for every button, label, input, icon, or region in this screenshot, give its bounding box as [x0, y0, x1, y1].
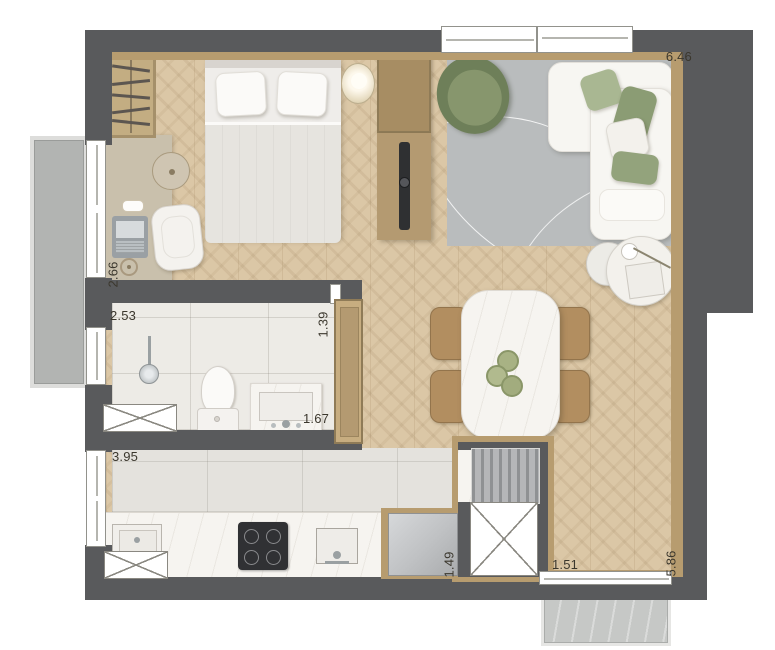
shaft-counter-return	[458, 450, 471, 502]
window-sash-line	[96, 456, 98, 496]
window-bedroom-left	[86, 140, 106, 278]
dimension-label: 1.67	[303, 411, 329, 426]
laptop	[112, 216, 148, 258]
kitchen-floor	[112, 448, 458, 512]
dimension-label: 5.86	[664, 543, 679, 577]
side-balcony	[30, 136, 88, 388]
kitchen-sink-main	[316, 528, 358, 564]
duvet	[205, 122, 341, 243]
desk-bowl	[120, 258, 138, 276]
table-lamp	[341, 63, 375, 104]
flush-button	[214, 416, 220, 422]
washing-machine	[104, 551, 168, 579]
window-lower-balcony	[539, 571, 672, 585]
shower-head-icon	[139, 364, 159, 384]
window-sash-line	[96, 213, 98, 273]
dimension-label: 2.53	[110, 308, 136, 323]
tv-mount	[399, 177, 410, 188]
shaft-duct	[470, 502, 538, 576]
double-bed	[205, 60, 341, 240]
lamp-pole	[169, 169, 175, 175]
tv-panel	[377, 133, 431, 240]
sofa-cushion-line	[599, 189, 665, 221]
cup	[621, 243, 638, 260]
window-sash-line	[544, 578, 669, 580]
vanity	[250, 383, 322, 434]
burner	[244, 550, 259, 565]
shaft-grille	[471, 448, 540, 504]
wall-bathroom-top	[112, 280, 362, 303]
sofa-pillow-green	[610, 150, 659, 185]
tv-cabinet	[377, 52, 431, 133]
wardrobe	[106, 54, 156, 138]
faucet-handle	[271, 423, 276, 428]
cooktop	[238, 522, 288, 570]
window-sash-line	[96, 332, 98, 380]
pillow	[215, 71, 267, 118]
faucet	[282, 420, 290, 428]
wall-trim-right	[671, 50, 683, 577]
desk-chair	[150, 203, 206, 273]
laptop-keyboard	[116, 241, 144, 253]
dimension-label: 3.95	[112, 449, 138, 464]
coffee-table-large	[606, 236, 676, 306]
desk-tray	[122, 200, 144, 212]
faucet-bar	[325, 561, 349, 564]
wall-right-upper	[683, 30, 753, 313]
window-sash-line	[96, 501, 98, 541]
faucet-handle	[296, 423, 301, 428]
laptop-screen	[116, 221, 144, 238]
wall-right-lower	[683, 313, 707, 577]
chair-seat-line	[160, 214, 196, 259]
dimension-label: 6.46	[640, 49, 692, 64]
decor-book	[625, 261, 665, 300]
faucet	[134, 537, 140, 543]
dimension-label: 1.51	[552, 557, 578, 572]
burner	[266, 550, 281, 565]
window-sash-line	[96, 145, 98, 205]
bathroom-door-leaf	[340, 307, 359, 437]
window-kitchen-left	[86, 450, 106, 547]
window-mullion	[536, 27, 538, 52]
shower-tray	[103, 404, 177, 432]
dimension-label: 2.66	[106, 254, 121, 288]
bathroom-door-frame	[334, 299, 363, 444]
floor-lamp	[152, 152, 190, 190]
window-bathroom-left	[86, 327, 106, 385]
burner	[244, 529, 259, 544]
pillow	[276, 71, 328, 118]
bowl	[501, 375, 523, 397]
burner	[266, 529, 281, 544]
window-living-top	[441, 26, 633, 53]
wall-bathroom-bottom	[85, 430, 362, 450]
bowl-center	[127, 265, 131, 269]
faucet	[333, 551, 341, 559]
lamp-shade	[351, 73, 367, 89]
floor-plan: 6.46 2.66 2.53 1.39 1.67 3.95 1.49 1.51 …	[0, 0, 775, 650]
headboard	[205, 60, 341, 68]
window-sash-line	[542, 37, 628, 39]
dimension-label: 1.39	[316, 304, 331, 338]
toilet	[197, 366, 237, 432]
window-sash-line	[446, 39, 534, 41]
toilet-bowl	[201, 366, 235, 414]
wall-left-top	[85, 30, 112, 145]
dimension-label: 1.49	[442, 544, 457, 578]
